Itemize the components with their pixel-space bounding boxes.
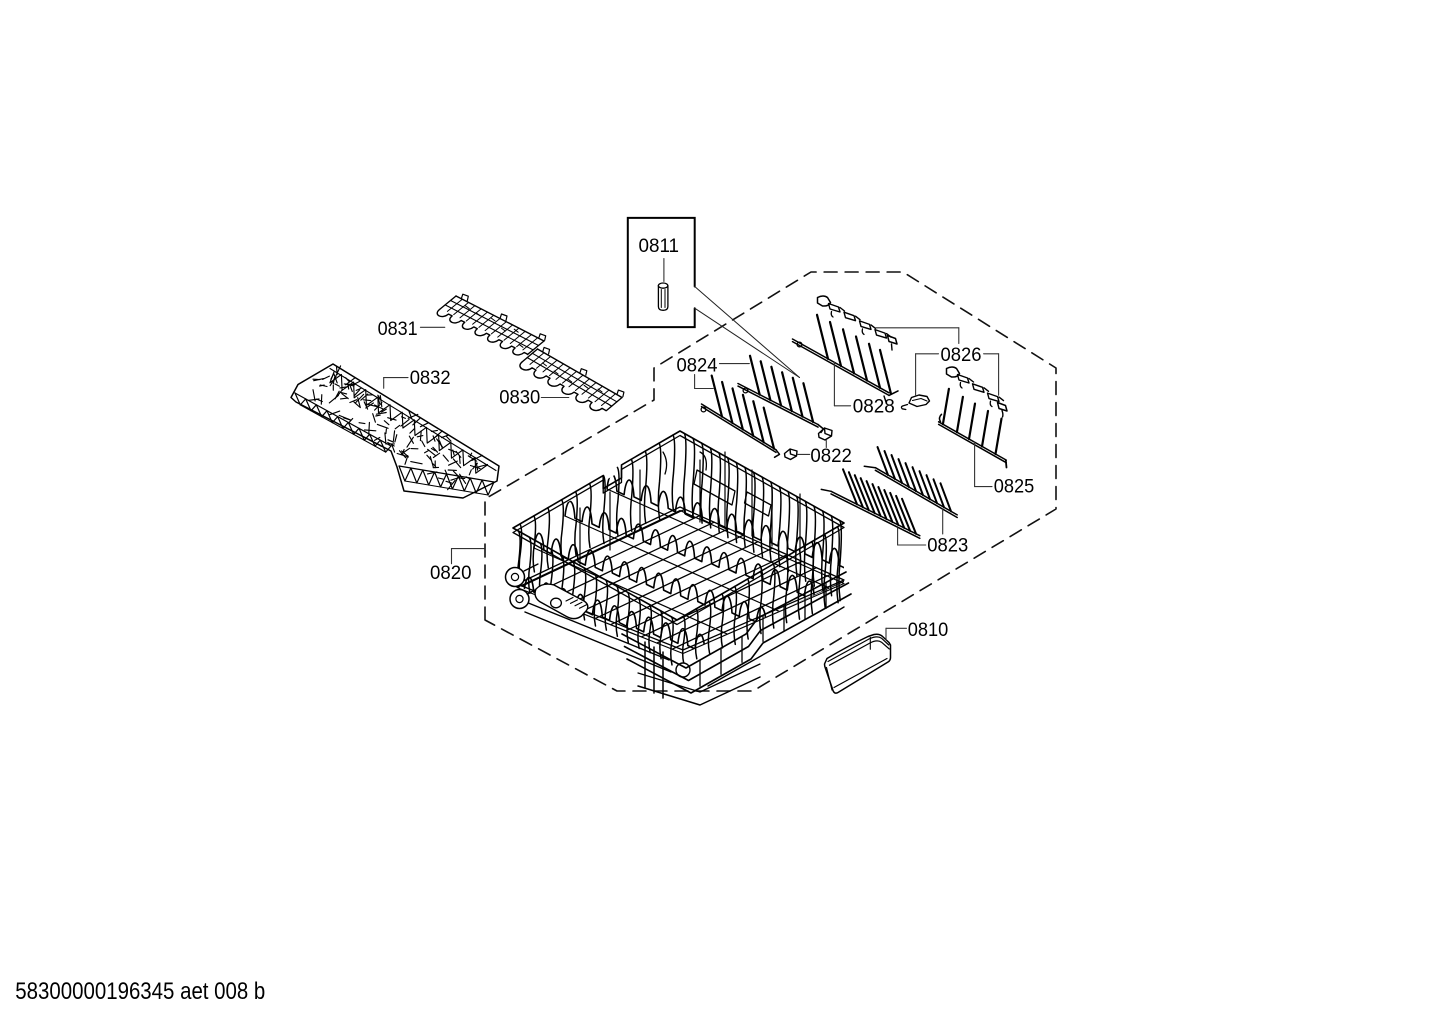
svg-text:0826: 0826 (941, 344, 982, 366)
svg-text:0811: 0811 (639, 235, 680, 257)
svg-text:58300000196345 aet 008 b: 58300000196345 aet 008 b (15, 978, 265, 1005)
svg-text:0830: 0830 (499, 387, 540, 409)
svg-text:0810: 0810 (908, 619, 949, 641)
svg-text:0832: 0832 (410, 367, 451, 389)
svg-text:0831: 0831 (378, 318, 418, 340)
svg-text:0825: 0825 (994, 476, 1035, 498)
svg-text:0823: 0823 (927, 535, 968, 557)
svg-text:0824: 0824 (677, 355, 718, 377)
svg-text:0822: 0822 (810, 445, 852, 467)
svg-text:0820: 0820 (430, 562, 472, 584)
svg-text:0828: 0828 (853, 396, 895, 418)
